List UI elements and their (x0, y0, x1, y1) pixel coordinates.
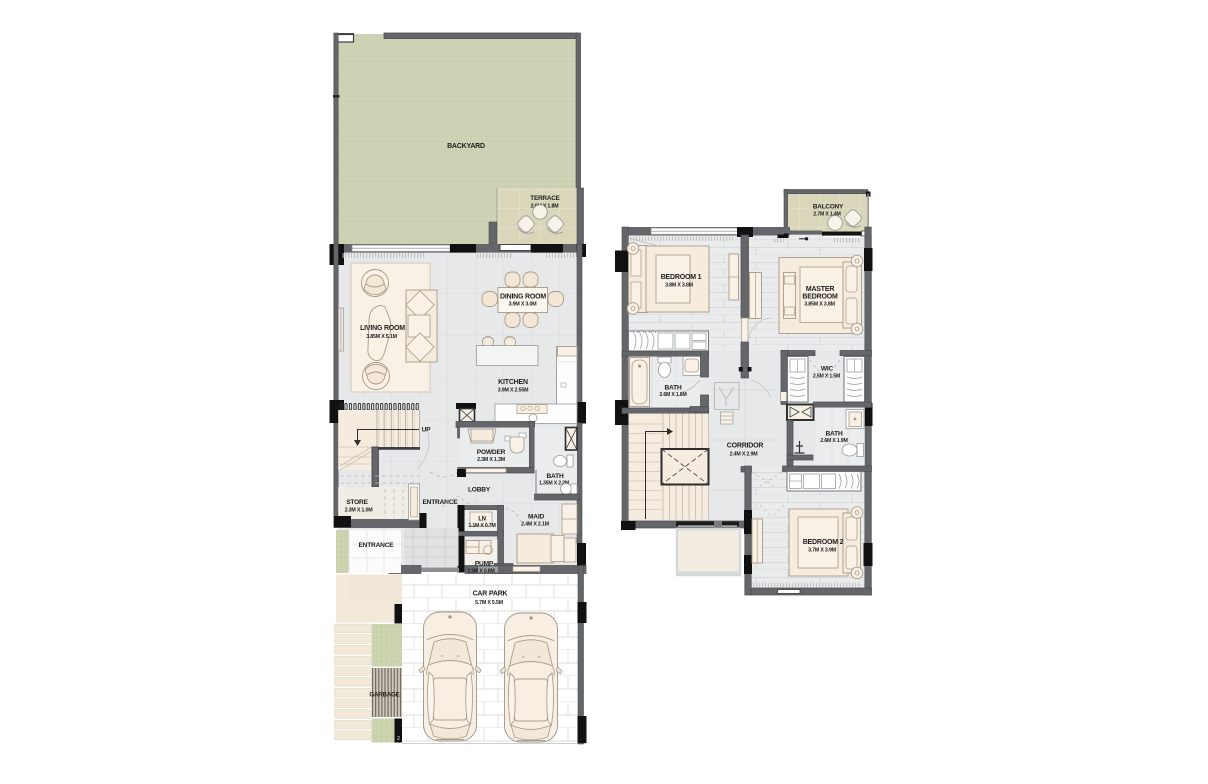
svg-text:CORRIDOR: CORRIDOR (727, 443, 764, 450)
svg-text:CAR PARK: CAR PARK (473, 591, 508, 598)
svg-text:LOBBY: LOBBY (468, 487, 491, 494)
svg-text:BALCONY: BALCONY (813, 204, 844, 211)
svg-text:MASTER: MASTER (806, 286, 835, 293)
svg-text:BATH: BATH (546, 473, 563, 480)
svg-text:2.4M X 2.1M: 2.4M X 2.1M (521, 522, 550, 528)
svg-text:5.7M X 5.5M: 5.7M X 5.5M (475, 600, 504, 606)
svg-text:2.3M X 1.0M: 2.3M X 1.0M (345, 508, 374, 514)
svg-text:2.6M X 1.9M: 2.6M X 1.9M (820, 438, 847, 444)
svg-text:3.8M X 3.8M: 3.8M X 3.8M (665, 283, 694, 289)
svg-text:2.6M X 1.8M: 2.6M X 1.8M (659, 392, 686, 398)
svg-text:WIC: WIC (821, 366, 834, 373)
svg-text:KITCHEN: KITCHEN (498, 379, 528, 386)
svg-text:PUMP: PUMP (475, 561, 494, 568)
svg-text:BEDROOM 2: BEDROOM 2 (803, 539, 844, 546)
svg-text:ENTRANCE: ENTRANCE (358, 542, 394, 549)
svg-text:2.3M X 1.3M: 2.3M X 1.3M (477, 457, 506, 463)
svg-text:3.7M X 3.9M: 3.7M X 3.9M (808, 548, 837, 554)
svg-text:BACKYARD: BACKYARD (447, 143, 485, 150)
svg-text:BATH: BATH (664, 385, 681, 392)
svg-text:1.1M X 0.7M: 1.1M X 0.7M (468, 523, 495, 529)
svg-text:DINING ROOM: DINING ROOM (500, 294, 546, 301)
svg-text:2.5M X 1.5M: 2.5M X 1.5M (813, 374, 840, 380)
svg-text:BATH: BATH (825, 431, 842, 438)
svg-text:1.1M X 0.8M: 1.1M X 0.8M (467, 569, 494, 575)
svg-text:3.9M X 3.0M: 3.9M X 3.0M (509, 302, 538, 308)
svg-text:BEDROOM 1: BEDROOM 1 (661, 274, 702, 281)
svg-text:3.85M X 3.8M: 3.85M X 3.8M (804, 302, 835, 308)
svg-text:ENTRANCE: ENTRANCE (422, 499, 458, 506)
svg-text:LIVING ROOM: LIVING ROOM (360, 325, 405, 332)
svg-text:2.4M X 2.9M: 2.4M X 2.9M (730, 452, 759, 458)
svg-text:MAID: MAID (528, 514, 544, 521)
svg-text:GARBAGE: GARBAGE (369, 692, 399, 699)
svg-text:LN: LN (478, 517, 486, 523)
svg-text:TERRACE: TERRACE (530, 195, 560, 202)
svg-text:3.9M X 2.55M: 3.9M X 2.55M (498, 388, 529, 394)
svg-text:BEDROOM: BEDROOM (802, 294, 838, 301)
svg-text:UP: UP (422, 427, 432, 434)
svg-text:3.85M X 5.1M: 3.85M X 5.1M (366, 334, 397, 340)
svg-text:POWDER: POWDER (477, 449, 506, 456)
svg-text:STORE: STORE (346, 499, 368, 506)
svg-text:2: 2 (397, 736, 400, 742)
